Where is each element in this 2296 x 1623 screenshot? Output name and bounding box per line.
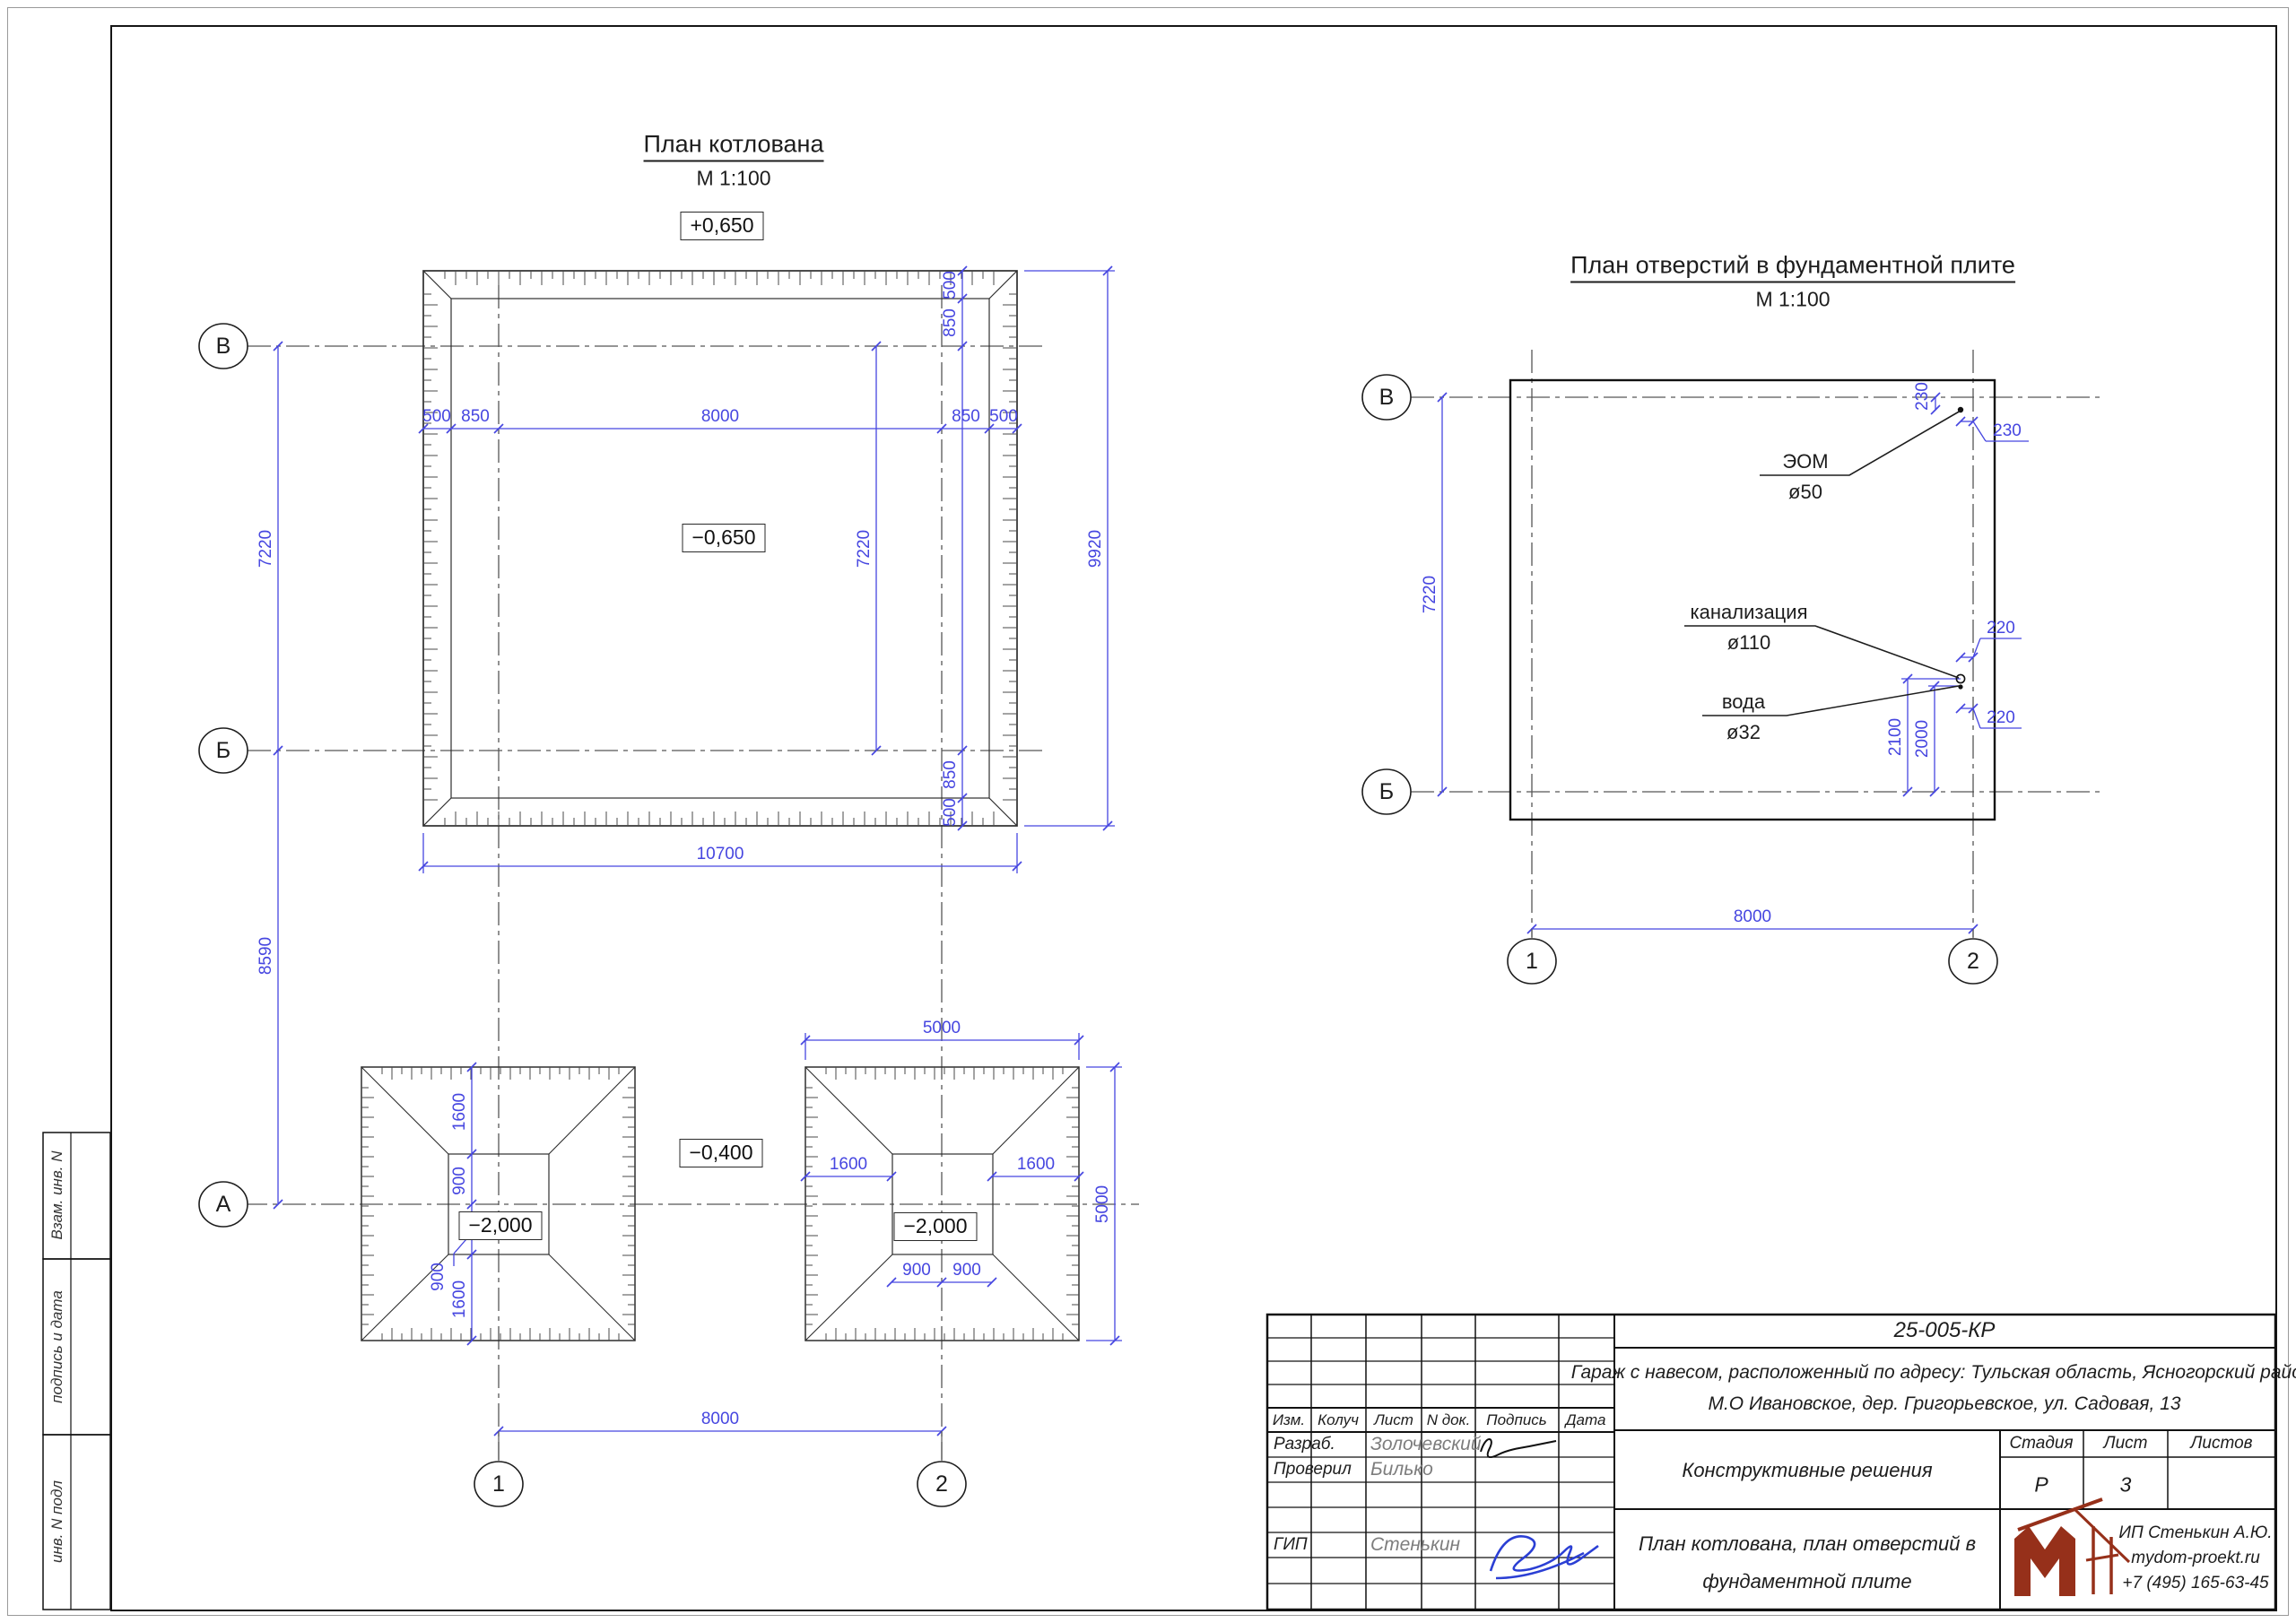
dim-500-v: 500 [941,798,960,827]
dimension-ticks [274,266,1978,1436]
axis-label-v: В [216,334,231,359]
axis-label-2: 2 [935,1471,948,1497]
elevation-minus-2000-left: −2,000 [459,1211,543,1240]
tb-sheetname-line2: фундаментной плите [1702,1570,1911,1593]
dim-500: 500 [989,407,1018,426]
tb-sheet-value: 3 [2120,1473,2132,1497]
dim-1600: 1600 [450,1093,469,1131]
dim-900: 900 [952,1261,981,1280]
elevation-minus-0650: −0,650 [683,524,766,552]
tb-col-data: Дата [1566,1411,1606,1429]
hole-water [1958,684,1962,689]
axis2-label-v: В [1379,385,1395,410]
dim-900: 900 [902,1261,931,1280]
dim2-230h: 230 [1993,421,2022,440]
elevation-minus-2000-right: −2,000 [894,1212,978,1241]
axis-label-a: А [216,1192,231,1217]
elevation-plus-0650: +0,650 [681,212,764,240]
axis-label-b: Б [216,738,230,763]
callout-water-dia: ø32 [1726,721,1761,743]
dim-8590-left: 8590 [257,937,275,975]
elevation-minus-0400: −0,400 [680,1139,763,1167]
dim2-220a: 220 [1987,619,2015,638]
plan1-title: План котлована [644,131,824,159]
tb-stage-value: Р [2034,1473,2048,1497]
dim-5000-top: 5000 [923,1019,961,1037]
callout-sewer-dia: ø110 [1727,631,1771,654]
slope-hatching [361,271,1079,1341]
dim-9920: 9920 [1086,530,1105,568]
axis2-label-1: 1 [1526,949,1538,974]
tb-sheets-label: Листов [2190,1434,2252,1454]
tb-company-name: ИП Стенькин А.Ю. [2118,1523,2272,1543]
tb-sheetname-line1: План котлована, план отверстий в [1639,1532,1976,1556]
dim-850-v: 850 [941,760,960,789]
dim-900: 900 [450,1167,469,1195]
tb-checker-name: Билько [1370,1459,1433,1480]
callout-sewer-name: канализация [1691,601,1808,623]
tb-sheet-label: Лист [2104,1434,2148,1454]
callout-water-name: вода [1722,690,1766,713]
dim2-2000: 2000 [1913,720,1932,758]
dim-1600-left: 1600 [830,1155,867,1174]
dim2-7220: 7220 [1421,576,1439,613]
dim-1600-right: 1600 [1017,1155,1055,1174]
tb-developer-name: Золочевский [1370,1434,1482,1455]
dim-850: 850 [461,407,490,426]
company-logo [2014,1499,2129,1596]
strip-podpis-data: подпись и дата [48,1290,66,1403]
tb-stage-label: Стадия [2009,1434,2073,1454]
dim-10700: 10700 [697,845,744,864]
dim2-220b: 220 [1987,708,2015,727]
dim-5000-side: 5000 [1093,1185,1112,1223]
tb-object-line1: Гараж с навесом, расположенный по адресу… [1571,1362,2296,1384]
callout-eom-dia: ø50 [1788,481,1822,503]
dim-500-v: 500 [941,271,960,299]
tb-col-list: Лист [1374,1411,1413,1429]
callout-eom-name: ЭОМ [1782,450,1828,473]
tb-gip-name: Стенькин [1370,1534,1460,1556]
dim-7220-left: 7220 [257,530,275,568]
tb-col-izm: Изм. [1273,1411,1305,1429]
tb-gip-role: ГИП [1274,1535,1308,1555]
tb-col-koluch: Колуч [1318,1411,1359,1429]
axis-bubbles [199,324,1997,1506]
dim-8000: 8000 [701,407,739,426]
axis2-label-2: 2 [1967,949,1979,974]
plan2-title: План отверстий в фундаментной плите [1570,252,2015,280]
tb-col-ndok: N док. [1427,1411,1471,1429]
tb-col-podpis: Подпись [1486,1411,1546,1429]
dim-850-v: 850 [941,308,960,337]
tb-doc-number: 25-005-КР [1894,1318,1996,1343]
dim-1600: 1600 [450,1280,469,1318]
tb-developer-role: Разраб. [1274,1435,1335,1454]
developer-signature [1481,1439,1556,1457]
dim-7220-inner: 7220 [855,530,874,568]
strip-inv-podl: инв. N подл [48,1480,66,1563]
dim2-230v: 230 [1913,382,1932,411]
plan2-scale: М 1:100 [1755,288,1830,312]
drawing-sheet: В Б А 1 2 В Б 1 2 500 850 8000 850 500 5… [0,0,2296,1623]
tb-company-phone: +7 (495) 165-63-45 [2122,1574,2268,1593]
axis-label-1: 1 [492,1471,505,1497]
dim2-8000: 8000 [1734,907,1771,926]
plan1-scale: М 1:100 [696,167,770,191]
dim-900-leader: 900 [429,1263,448,1291]
tb-company-site: mydom-proekt.ru [2131,1549,2260,1568]
tb-section-title: Конструктивные решения [1682,1459,1932,1482]
tb-checker-role: Проверил [1274,1460,1352,1480]
dim-850: 850 [952,407,980,426]
dimension-lines [278,271,2029,1431]
dim-8000-axes: 8000 [701,1410,739,1428]
dim-500: 500 [422,407,451,426]
axis2-label-b: Б [1379,779,1394,804]
tb-object-line2: М.О Ивановское, дер. Григорьевское, ул. … [1708,1393,2180,1415]
dim2-2100: 2100 [1886,718,1905,756]
strip-vzam-inv: Взам. инв. N [48,1150,66,1239]
